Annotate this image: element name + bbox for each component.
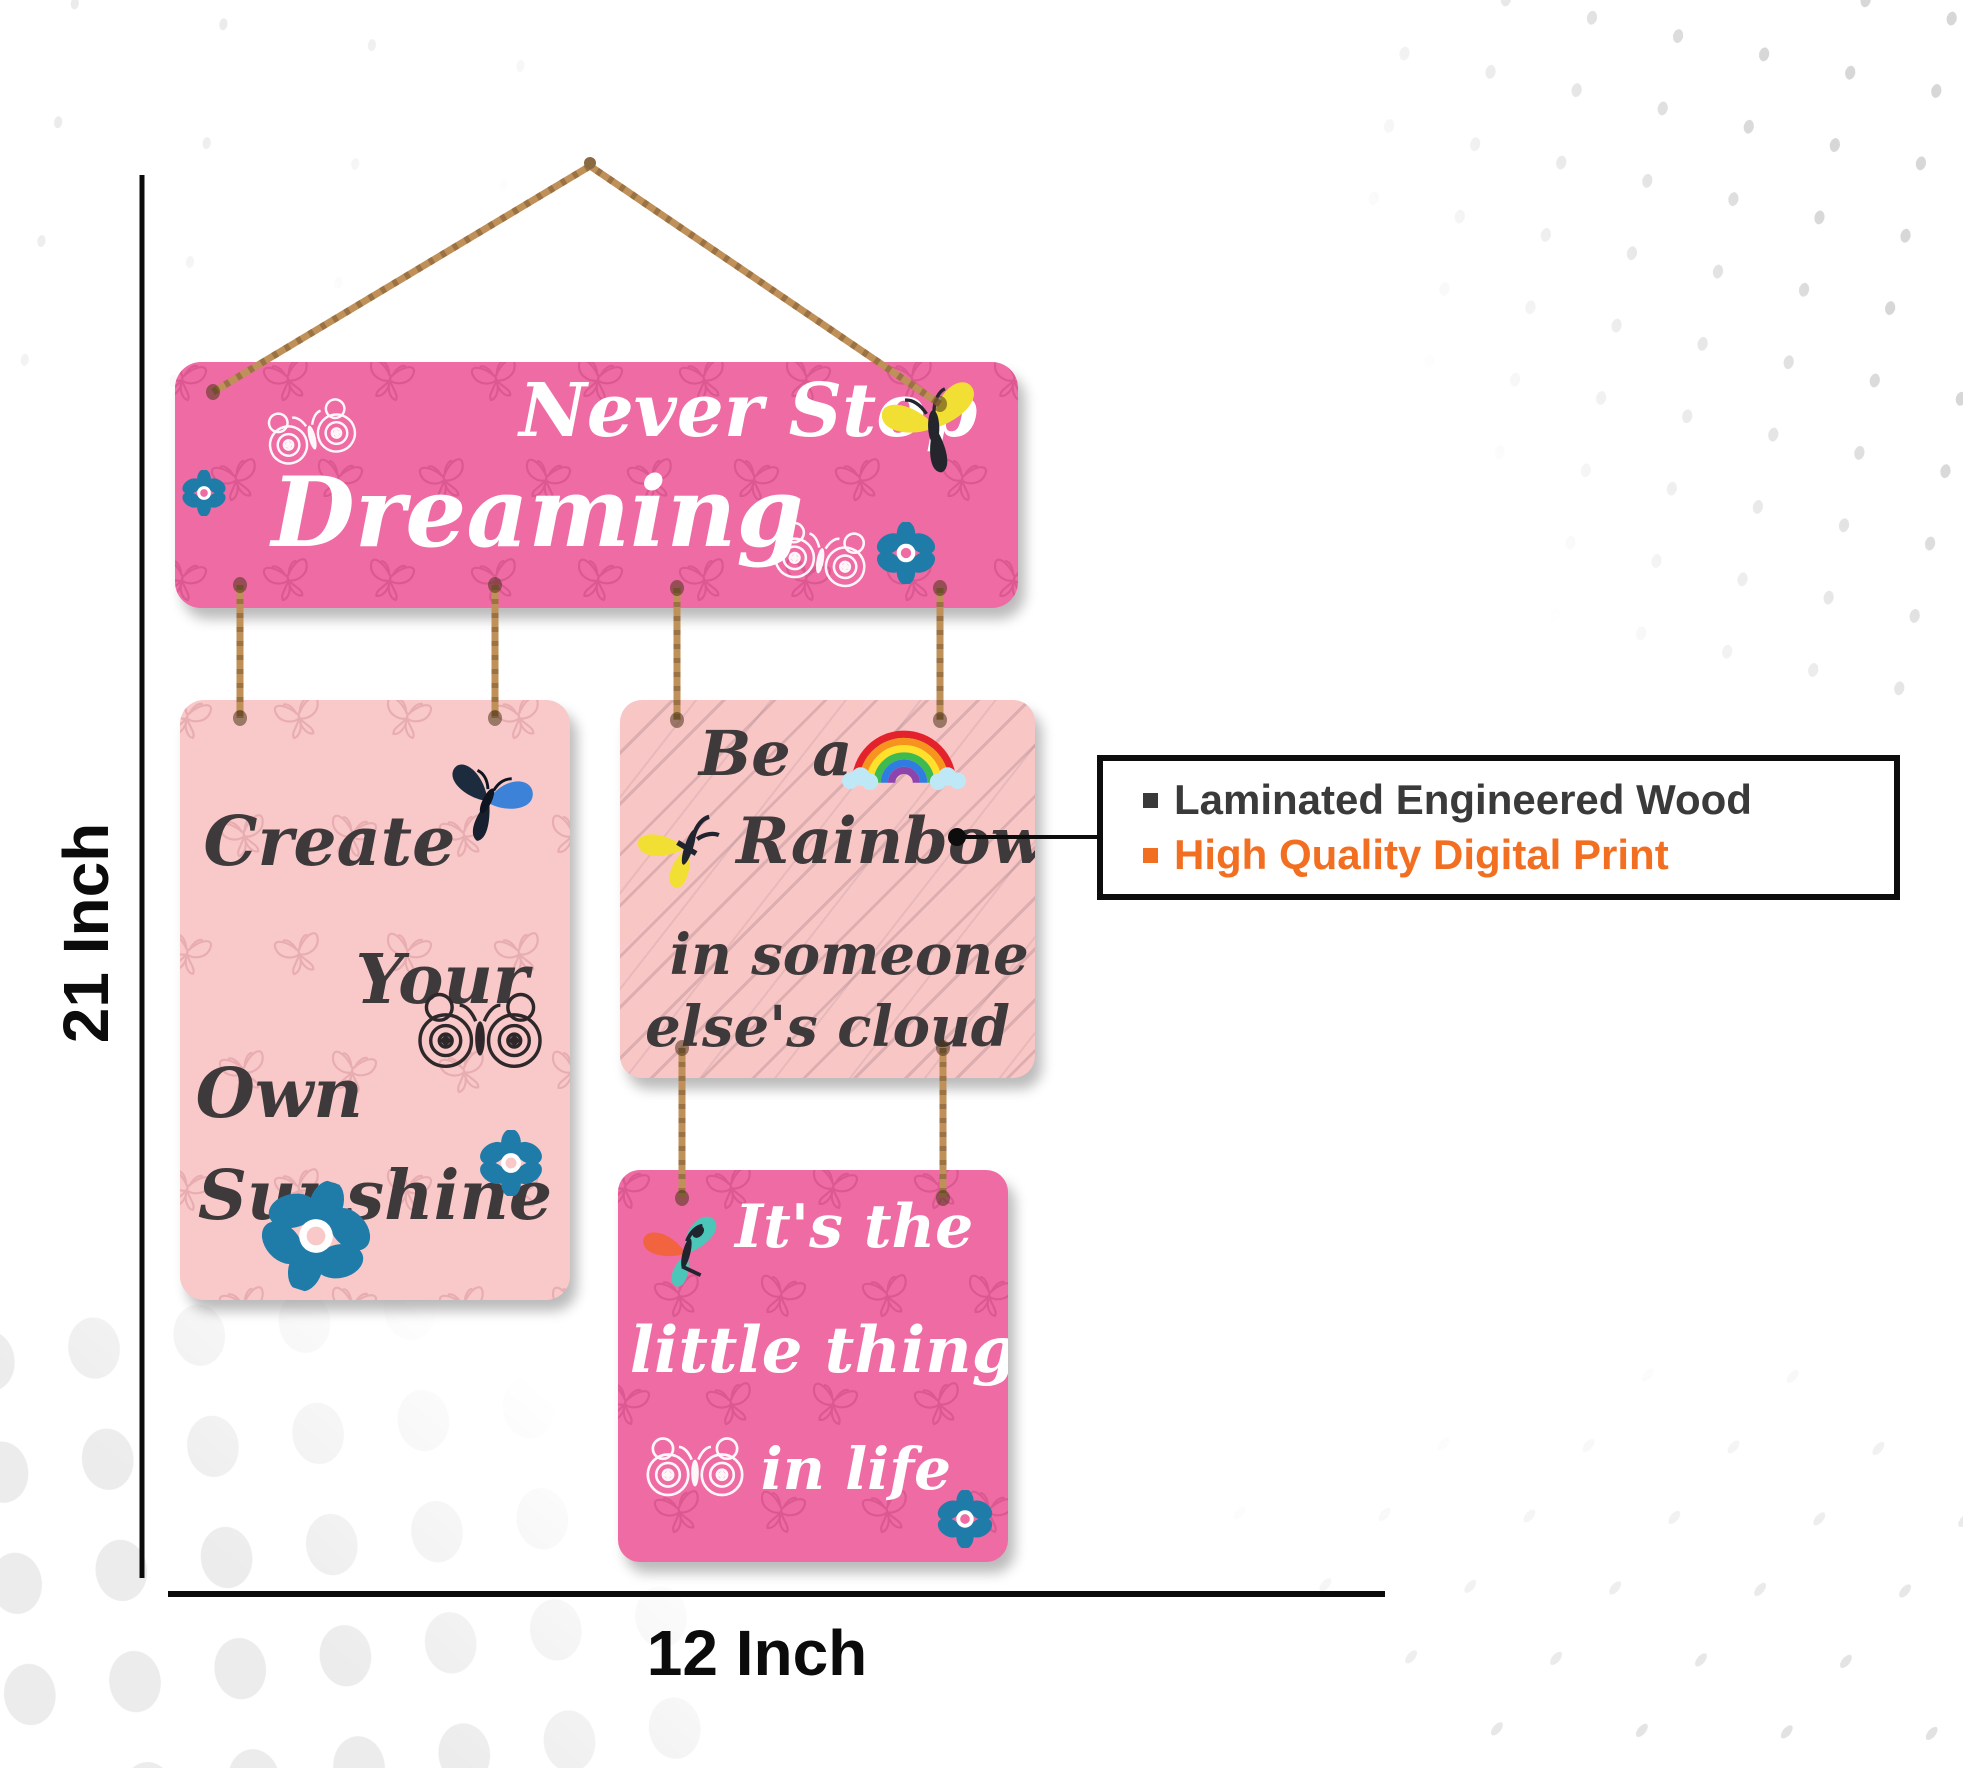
pattern-butterfly-icon (175, 542, 220, 608)
rainbow-with-clouds-icon (842, 716, 966, 800)
feature-item-print: High Quality Digital Print (1143, 834, 1894, 876)
panel-create-your-own-sunshine: Create Your Own Sunshine (180, 700, 570, 1300)
feature-item-print-text: High Quality Digital Print (1174, 834, 1669, 876)
blue-flower-icon (936, 1490, 994, 1548)
quote-bottom-line3: in life (755, 1440, 958, 1498)
panel-never-stop-dreaming: Never Stop Dreaming (175, 362, 1018, 608)
product-advert-image: Never Stop Dreaming (0, 0, 1963, 1768)
pattern-butterfly-icon (425, 1269, 500, 1300)
panel-be-a-rainbow: Be a (620, 700, 1035, 1078)
quote-rainbow-line4: else's cloud (645, 999, 1010, 1055)
width-dimension-label: 12 Inch (647, 1616, 868, 1690)
quote-rainbow-line3: in someone (670, 927, 1010, 983)
pattern-butterfly-icon (260, 915, 335, 983)
pattern-butterfly-icon (480, 700, 555, 747)
blue-flower-icon (875, 522, 937, 584)
quote-top-line2: Dreaming (234, 465, 841, 561)
pattern-butterfly-icon (536, 798, 570, 864)
black-lace-butterfly-icon (405, 978, 555, 1086)
feature-item-material-text: Laminated Engineered Wood (1174, 779, 1752, 821)
quote-left-line1: Create (203, 808, 455, 876)
pattern-butterfly-icon (180, 916, 225, 982)
pattern-butterfly-icon (180, 700, 225, 746)
quote-bottom-line1: It's the (735, 1197, 961, 1257)
pattern-butterfly-icon (978, 542, 1018, 608)
pattern-butterfly-icon (371, 700, 445, 746)
quote-bottom-line2: little things (630, 1319, 997, 1383)
white-lace-butterfly-icon (758, 503, 884, 608)
pattern-butterfly-icon (354, 362, 428, 408)
feature-callout-box: Laminated Engineered Wood High Quality D… (1097, 755, 1900, 900)
quote-left-line3: Own (196, 1060, 363, 1128)
panel-little-things-in-life: It's the little things in life (618, 1170, 1008, 1562)
square-bullet-icon (1143, 793, 1158, 808)
blue-flower-icon (478, 1130, 544, 1196)
blue-flower-icon (181, 470, 227, 516)
square-bullet-icon (1143, 848, 1158, 863)
height-dimension-label: 21 Inch (49, 823, 123, 1044)
pattern-butterfly-icon (536, 1270, 570, 1300)
quote-rainbow-line1: Be a (699, 723, 853, 785)
halftone-dots-bottom-right (1162, 1089, 1963, 1768)
quote-rainbow-line2: Rainbow (736, 810, 1035, 874)
feature-item-material: Laminated Engineered Wood (1143, 779, 1894, 821)
white-lace-butterfly-icon (636, 1422, 754, 1514)
pattern-butterfly-icon (260, 700, 335, 747)
halftone-dots-top-right (1242, 0, 1963, 757)
pattern-butterfly-icon (175, 362, 220, 408)
